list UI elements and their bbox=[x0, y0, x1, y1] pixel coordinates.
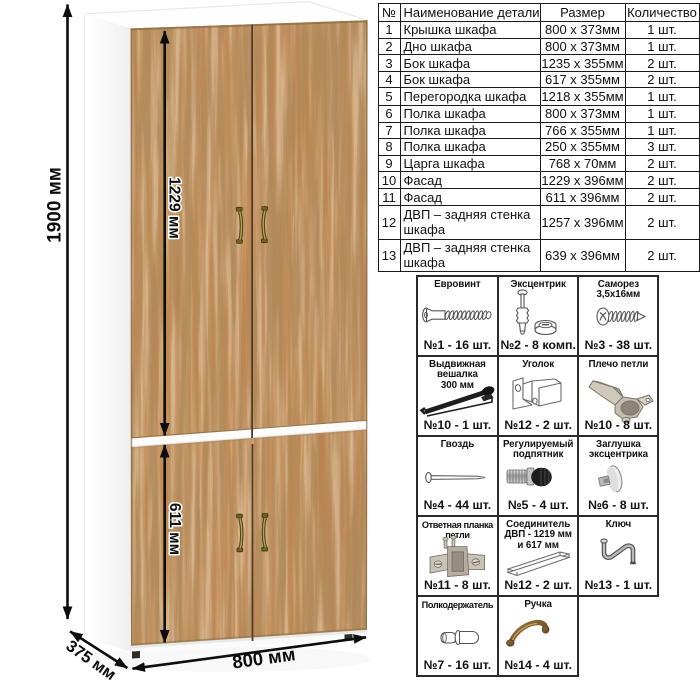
svg-text:1229 мм: 1229 мм bbox=[166, 177, 183, 239]
svg-text:1900 мм: 1900 мм bbox=[45, 167, 66, 243]
svg-text:611 мм: 611 мм bbox=[166, 503, 183, 555]
